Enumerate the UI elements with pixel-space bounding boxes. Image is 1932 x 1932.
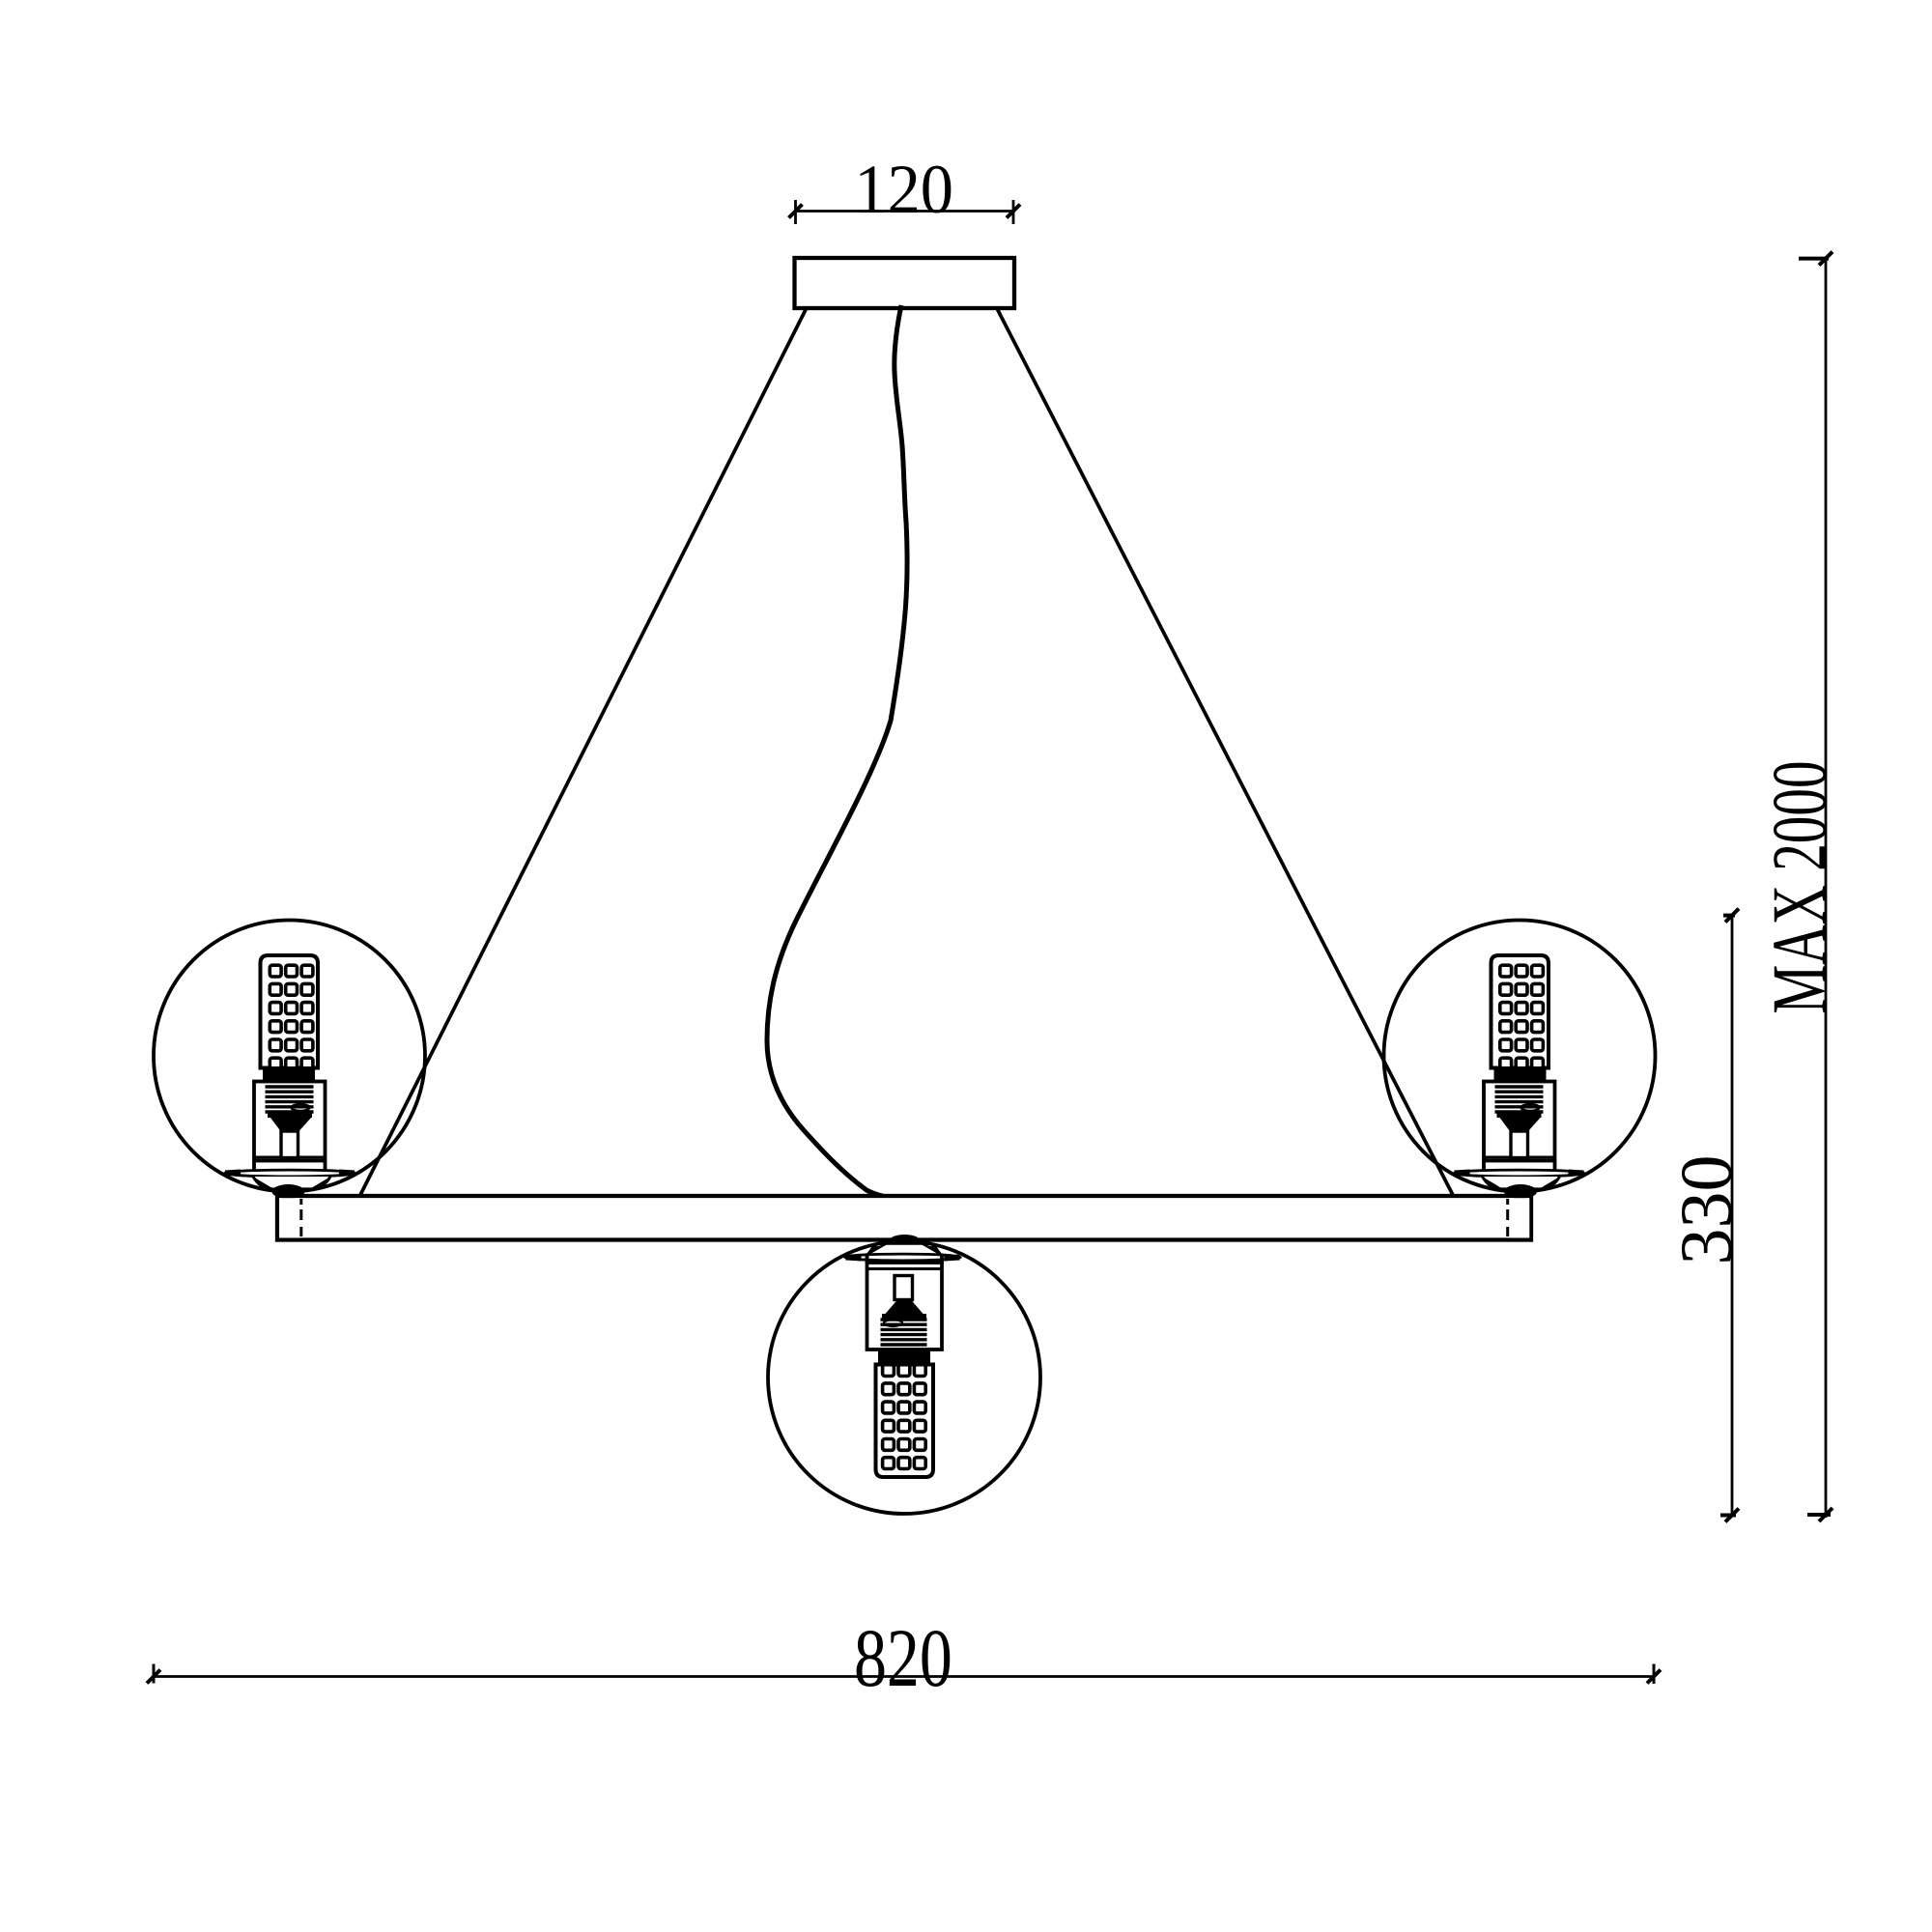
svg-text:120: 120 [854,151,953,228]
svg-text:MAX 2000: MAX 2000 [1757,760,1843,1013]
svg-text:330: 330 [1666,1155,1747,1265]
svg-text:820: 820 [854,1611,952,1703]
